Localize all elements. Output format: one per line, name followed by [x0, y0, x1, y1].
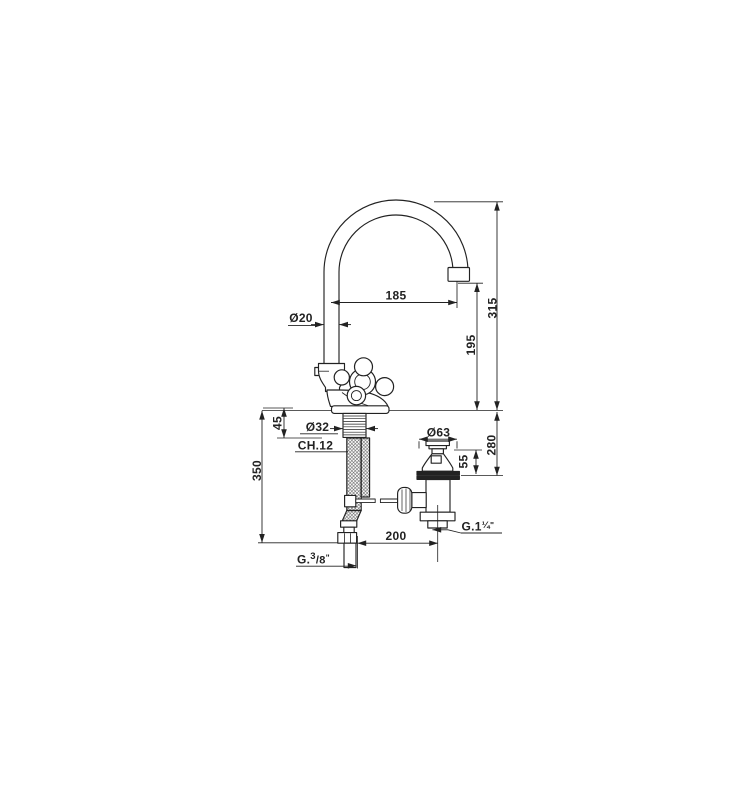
label-supply-thread: G.3/8" — [297, 551, 330, 567]
supply-hose-rear — [361, 438, 370, 497]
dim-waste-height: 55 — [457, 455, 471, 469]
handle-ball-top — [355, 358, 373, 376]
technical-drawing-page: 185 Ø20 315 195 45 Ø32 CH.12 350 Ø63 55 … — [0, 0, 739, 800]
dim-deck-clamp: 45 — [271, 416, 285, 430]
pop-up-rod-a — [356, 499, 375, 503]
dim-overall-height: 315 — [486, 298, 500, 319]
pop-up-waste — [398, 441, 460, 528]
swan-neck-spout — [324, 200, 468, 366]
threaded-shank — [343, 413, 366, 437]
base-plate — [332, 406, 390, 414]
dim-shank-diameter: Ø32 — [306, 420, 330, 434]
hose-collar — [341, 521, 357, 527]
dim-wrench-size: CH.12 — [298, 439, 334, 453]
dim-spout-reach: 185 — [386, 289, 407, 303]
pop-up-rod-clevis — [345, 495, 356, 506]
faucet-assembly — [315, 200, 470, 568]
pop-up-rod-b — [380, 499, 398, 503]
dim-outlet-height: 195 — [464, 335, 478, 356]
dim-waste-drop: 280 — [485, 435, 499, 456]
supply-hose-bend — [342, 511, 361, 522]
label-waste-thread: G.1¼" — [462, 520, 495, 534]
waste-plug-cap — [426, 441, 449, 446]
dim-waste-cap-diameter: Ø63 — [427, 426, 451, 440]
knurled-nut — [398, 487, 412, 513]
handle-ball-left — [334, 370, 349, 385]
faucet-technical-drawing: 185 Ø20 315 195 45 Ø32 CH.12 350 Ø63 55 … — [0, 0, 739, 800]
spout-nozzle — [448, 268, 470, 282]
hose-neck — [344, 527, 354, 532]
hose-hex-nut — [338, 533, 357, 544]
waste-side-port — [412, 493, 426, 508]
supply-tail-pipe — [344, 543, 356, 567]
dimension-labels: 185 Ø20 315 195 45 Ø32 CH.12 350 Ø63 55 … — [250, 289, 500, 567]
dim-spout-tube-diameter: Ø20 — [289, 311, 313, 325]
handle-ball-right — [376, 378, 394, 396]
dim-hose-drop: 350 — [250, 460, 264, 481]
dim-rod-offset: 200 — [386, 529, 407, 543]
waste-flange-seal — [417, 471, 459, 475]
